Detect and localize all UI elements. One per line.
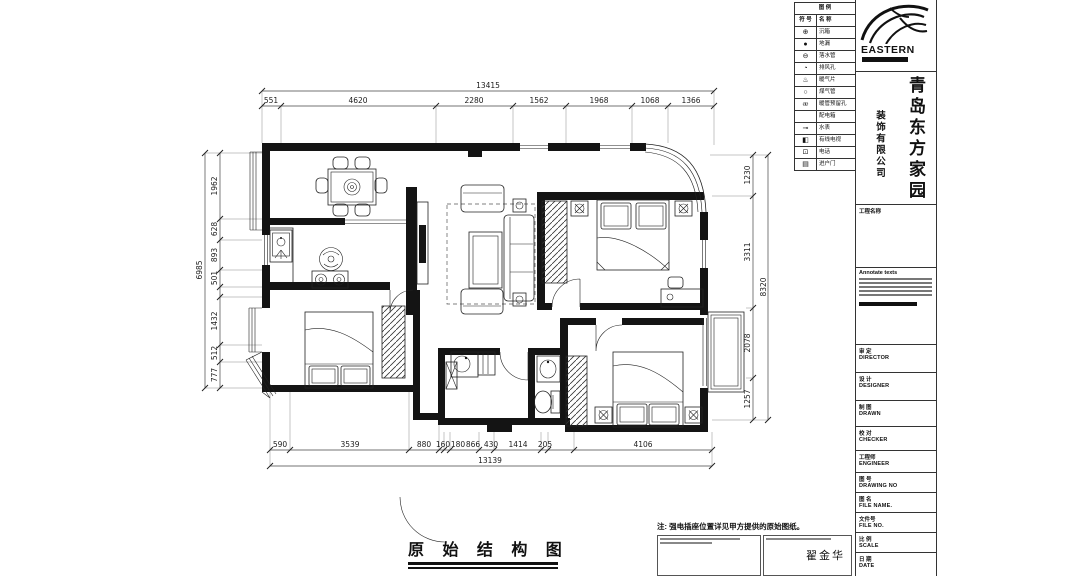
legend-name: 暖管预留孔 <box>817 99 855 110</box>
legend-name: 排风孔 <box>817 63 855 74</box>
dim-bottom-0: 590 <box>273 440 288 449</box>
dim-bottom-3: 160 <box>436 440 451 449</box>
bedroom-bottom-left <box>305 306 405 388</box>
dim-top-6: 1366 <box>681 96 700 105</box>
dim-right-0: 1230 <box>743 165 752 184</box>
dim-bottom-8: 205 <box>538 440 553 449</box>
legend-row: ▤进户门 <box>795 159 855 170</box>
dim-left-1: 628 <box>210 222 219 237</box>
dim-right-1: 3311 <box>743 242 752 261</box>
eastern-logo-icon <box>856 0 934 44</box>
title-underline <box>408 567 558 569</box>
field-drawn: 制 图 DRAWN <box>856 401 936 427</box>
dim-left-6: 777 <box>210 368 219 383</box>
field-cn: 文件号 <box>856 513 936 523</box>
field-file-name: 图 名 FILE NAME. <box>856 493 936 513</box>
legend-name: 有线电视 <box>817 135 855 146</box>
field-cn: 校 对 <box>856 427 936 437</box>
annotation-text-line <box>859 290 932 292</box>
plan-note: 注: 强电插座位置详见甲方提供的原始图纸。 <box>657 521 804 532</box>
box-header-line <box>660 542 712 544</box>
field-en: DRAWING NO <box>856 483 936 489</box>
legend-row: ⊖落水管 <box>795 51 855 63</box>
legend-row: ⊸水表 <box>795 123 855 135</box>
downpipe-icon: ⊖ <box>795 51 817 62</box>
field-cn: 比 例 <box>856 533 936 543</box>
vent-hole-icon: ◔ <box>795 63 817 74</box>
dim-left-4: 1432 <box>210 311 219 330</box>
dim-bottom-1: 3539 <box>340 440 359 449</box>
cable-tv-icon: ◧ <box>795 135 817 146</box>
floor-plan-drawing: 13415 551 4620 2280 1562 1968 1068 1366 … <box>0 0 800 576</box>
dim-left-2: 893 <box>210 248 219 263</box>
field-file-no: 文件号 FILE NO. <box>856 513 936 533</box>
field-director: 审 定 DIRECTOR <box>856 345 936 373</box>
dim-top-5: 1068 <box>640 96 659 105</box>
dim-top-4: 1968 <box>589 96 608 105</box>
field-en: DIRECTOR <box>856 355 936 361</box>
dim-top-1: 4620 <box>348 96 367 105</box>
legend-row: ◔排风孔 <box>795 63 855 75</box>
water-meter-icon: ⊸ <box>795 123 817 134</box>
logo-text: EASTERN <box>861 44 915 56</box>
legend-name: 地漏 <box>817 39 855 50</box>
title-block-column: EASTERN 青岛东方家园 装饰有限公司 工程名称 Annotate text… <box>855 0 937 576</box>
field-checker: 校 对 CHECKER <box>856 427 936 451</box>
dim-bottom-total: 13139 <box>478 456 502 465</box>
project-name-box: 工程名称 <box>856 205 936 268</box>
field-en: DATE <box>856 563 936 569</box>
legend-name: 水表 <box>817 123 855 134</box>
field-drawing-no: 图 号 DRAWING NO <box>856 473 936 493</box>
field-en: CHECKER <box>856 437 936 443</box>
annotation-section: Annotate texts <box>856 268 936 345</box>
bedroom-bottom-right <box>566 352 702 427</box>
dining-set <box>316 157 387 216</box>
telephone-icon: ⊡ <box>795 147 817 158</box>
legend-row: ◧有线电视 <box>795 135 855 147</box>
drawing-title-block: 原 始 结 构 图 <box>408 536 568 569</box>
legend-row: ♨暖气片 <box>795 75 855 87</box>
field-en: FILE NO. <box>856 523 936 529</box>
floor-drain-icon: ● <box>795 39 817 50</box>
legend-header: 图 例 <box>795 3 855 15</box>
field-cn: 日 期 <box>856 553 936 563</box>
annotation-text-line <box>859 282 932 284</box>
annotation-text-line <box>859 286 932 288</box>
drawing-title: 原 始 结 构 图 <box>408 536 568 560</box>
field-cn: 设 计 <box>856 373 936 383</box>
field-cn: 制 图 <box>856 401 936 411</box>
field-cn: 工程师 <box>856 451 936 461</box>
legend-row: ⊡电话 <box>795 147 855 159</box>
dim-left-total: 6985 <box>195 260 204 279</box>
dim-left-0: 1962 <box>210 176 219 195</box>
legend-row: ⧞暖管预留孔 <box>795 99 855 111</box>
bathroom-fixtures <box>446 352 560 413</box>
entry-door-icon: ▤ <box>795 159 817 170</box>
dim-top-2: 2280 <box>464 96 483 105</box>
legend-name: 暖气片 <box>817 75 855 86</box>
legend-name: 落水管 <box>817 51 855 62</box>
company-logo-section: EASTERN <box>856 0 936 72</box>
dim-bottom-7: 1414 <box>508 440 527 449</box>
box-header-line <box>660 538 740 540</box>
dim-left-3: 501 <box>210 271 219 286</box>
field-engineer: 工程师 ENGINEER <box>856 451 936 473</box>
legend-row: ⊕沉箱 <box>795 27 855 39</box>
annotation-text-line <box>859 294 932 296</box>
legend-table: 图 例 符 号 名 称 ⊕沉箱 ●地漏 ⊖落水管 ◔排风孔 ♨暖气片 ○煤气管 … <box>794 2 856 171</box>
dim-top-3: 1562 <box>529 96 548 105</box>
field-en: DESIGNER <box>856 383 936 389</box>
title-underline <box>408 562 558 565</box>
dim-left-5: 512 <box>210 346 219 361</box>
legend-col-symbol: 符 号 <box>795 15 817 26</box>
legend-name: 电话 <box>817 147 855 158</box>
signature-box-right: 翟金华 <box>763 535 852 576</box>
walls <box>262 143 708 432</box>
gas-pipe-icon: ○ <box>795 87 817 98</box>
annotation-text-line <box>859 278 932 280</box>
annotation-bold-line <box>859 302 917 306</box>
legend-row: ○煤气管 <box>795 87 855 99</box>
legend-row: 配电箱 <box>795 111 855 123</box>
field-en: FILE NAME. <box>856 503 936 509</box>
legend-row: ●地漏 <box>795 39 855 51</box>
legend-col-name: 名 称 <box>817 15 855 26</box>
signature-box-left <box>657 535 761 576</box>
field-scale: 比 例 SCALE <box>856 533 936 553</box>
distribution-box-icon <box>795 111 817 122</box>
reserved-pipe-hole-icon: ⧞ <box>795 99 817 110</box>
kitchen-fixtures <box>270 228 348 288</box>
field-en: ENGINEER <box>856 461 936 467</box>
caisson-icon: ⊕ <box>795 27 817 38</box>
annotate-label: Annotate texts <box>856 268 936 276</box>
dim-top-total: 13415 <box>476 81 500 90</box>
project-name-label: 工程名称 <box>856 205 936 215</box>
legend-name: 煤气管 <box>817 87 855 98</box>
dim-bottom-2: 880 <box>417 440 432 449</box>
dim-bottom-9: 4106 <box>633 440 652 449</box>
radiator-icon: ♨ <box>795 75 817 86</box>
company-name-section: 青岛东方家园 装饰有限公司 <box>856 72 936 205</box>
signature-name: 翟金华 <box>806 547 845 563</box>
bedroom-top-right <box>542 200 703 307</box>
company-name-primary: 青岛东方家园 <box>903 76 928 202</box>
dim-bottom-4: 180 <box>451 440 466 449</box>
field-date: 日 期 DATE <box>856 553 936 571</box>
field-designer: 设 计 DESIGNER <box>856 373 936 401</box>
legend-name: 进户门 <box>817 159 855 170</box>
dim-right-total: 8320 <box>759 277 768 296</box>
field-cn: 图 号 <box>856 473 936 483</box>
field-cn: 审 定 <box>856 345 936 355</box>
field-cn: 图 名 <box>856 493 936 503</box>
box-header-line <box>766 538 831 540</box>
legend-name: 配电箱 <box>817 111 855 122</box>
dim-bottom-6: 430 <box>484 440 499 449</box>
living-room-furniture <box>417 185 535 314</box>
field-en: SCALE <box>856 543 936 549</box>
field-en: DRAWN <box>856 411 936 417</box>
dim-top-0: 551 <box>264 96 279 105</box>
legend-name: 沉箱 <box>817 27 855 38</box>
company-name-secondary: 装饰有限公司 <box>872 110 886 179</box>
logo-subtext-bar <box>862 57 908 62</box>
dim-bottom-5: 866 <box>466 440 481 449</box>
